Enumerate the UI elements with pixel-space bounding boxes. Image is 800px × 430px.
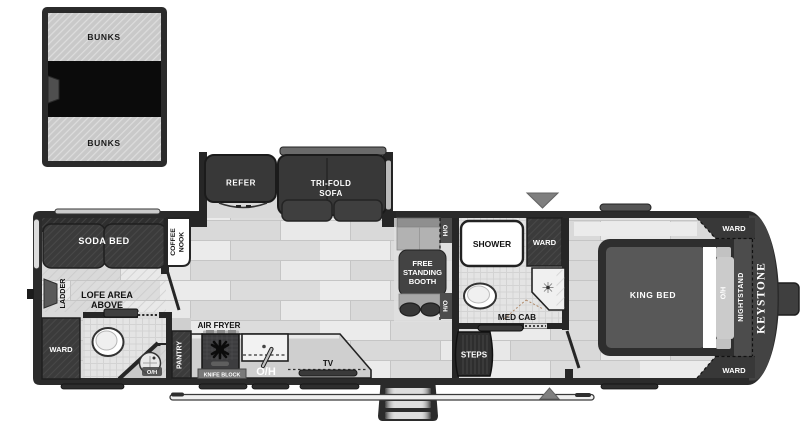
svg-text:H/O: H/O — [443, 300, 450, 311]
svg-text:STANDING: STANDING — [403, 268, 442, 277]
svg-text:NIGHTSTAND: NIGHTSTAND — [738, 272, 745, 321]
svg-text:WARD: WARD — [533, 238, 557, 247]
svg-text:BUNKS: BUNKS — [87, 138, 120, 148]
svg-text:STEPS: STEPS — [461, 351, 488, 360]
svg-text:LOFE AREA: LOFE AREA — [81, 290, 133, 300]
svg-text:H/O: H/O — [443, 225, 450, 236]
svg-text:NOOK: NOOK — [179, 232, 186, 252]
svg-text:BUNKS: BUNKS — [87, 32, 120, 42]
svg-text:AIR FRYER: AIR FRYER — [198, 321, 241, 330]
svg-text:O/H: O/H — [256, 366, 276, 378]
svg-text:O/H: O/H — [147, 370, 157, 376]
svg-text:WARD: WARD — [49, 345, 73, 354]
svg-text:BOOTH: BOOTH — [409, 277, 436, 286]
svg-text:WARD: WARD — [722, 224, 746, 233]
svg-text:SHOWER: SHOWER — [473, 239, 511, 249]
svg-text:KNIFE BLOCK: KNIFE BLOCK — [204, 373, 241, 379]
svg-text:TV: TV — [323, 359, 334, 368]
svg-text:MED CAB: MED CAB — [498, 313, 536, 322]
svg-text:TRI-FOLD: TRI-FOLD — [311, 179, 352, 188]
svg-text:O/H: O/H — [721, 287, 728, 299]
svg-text:PANTRY: PANTRY — [177, 341, 184, 369]
svg-text:KING BED: KING BED — [630, 290, 676, 300]
svg-text:SOFA: SOFA — [319, 189, 342, 198]
svg-text:FREE: FREE — [412, 259, 432, 268]
svg-text:COFFEE: COFFEE — [170, 228, 177, 256]
svg-text:KEYSTONE: KEYSTONE — [756, 262, 768, 334]
svg-text:WARD: WARD — [722, 366, 746, 375]
svg-text:LADDER: LADDER — [58, 278, 67, 309]
svg-text:SODA BED: SODA BED — [78, 236, 129, 246]
svg-text:REFER: REFER — [226, 179, 256, 188]
